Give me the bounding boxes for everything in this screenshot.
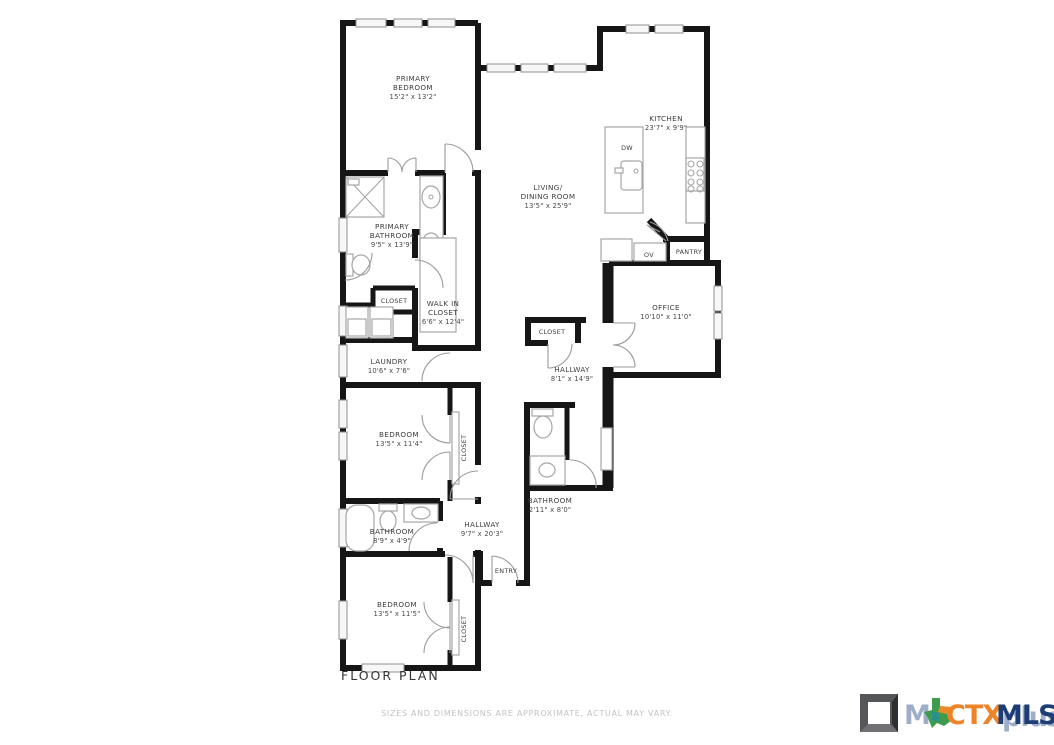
label-walk-in-closet-dims: 6'6" x 12'4" [422,318,464,326]
label-walk-in-closet-2: CLOSET [428,308,458,317]
label-bedroom-mid-dims: 13'5" x 11'4" [376,440,423,448]
label-laundry-dims: 10'6" x 7'6" [368,367,410,375]
label-bedroom-mid: BEDROOM [379,430,419,439]
label-primary-bedroom-dims: 15'2" x 13'2" [390,93,437,101]
label-hallway-lower: HALLWAY [464,520,500,529]
label-living-dims: 13'5" x 25'9" [525,202,572,210]
label-bedroom-bottom: BEDROOM [377,600,417,609]
logo-ghost-text: M [904,700,930,731]
brand-logo: M CTX plus MLS [858,690,1054,740]
label-living-2: DINING ROOM [521,192,576,201]
label-bathroom-small-dims: 2'11" x 8'0" [529,506,571,514]
label-bathroom-small: BATHROOM [528,496,572,505]
label-office-dims: 10'10" x 11'0" [640,313,691,321]
label-pantry: PANTRY [676,248,702,256]
label-closet-bath: CLOSET [381,297,408,305]
label-bedroom-bottom-dims: 13'5" x 11'5" [374,610,421,618]
logo-ctx-text: CTX [946,700,1003,731]
plan-title: FLOOR PLAN [341,668,440,683]
floor-plan-drawing: PRIMARY BEDROOM 15'2" x 13'2" KITCHEN 23… [0,0,1054,745]
room-labels: PRIMARY BEDROOM 15'2" x 13'2" KITCHEN 23… [368,74,702,642]
label-bathroom-mid-dims: 8'9" x 4'9" [373,537,411,545]
label-closet-mid: CLOSET [460,435,468,462]
label-primary-bathroom-dims: 9'5" x 13'9" [371,241,413,249]
label-hallway-lower-dims: 9'7" x 20'3" [461,530,503,538]
label-bathroom-mid: BATHROOM [370,527,414,536]
label-closet-bottom: CLOSET [460,616,468,643]
label-hallway-upper-dims: 8'1" x 14'9" [551,375,593,383]
label-kitchen-dims: 23'7" x 9'9" [645,124,687,132]
label-entry: ENTRY [495,567,517,575]
label-primary-bathroom: PRIMARY [375,222,409,231]
label-dishwasher: DW [621,144,633,152]
label-oven: OV [644,251,654,259]
doors [345,144,635,653]
logo-mls-text: MLS [996,700,1054,731]
label-office: OFFICE [652,303,680,312]
label-walk-in-closet: WALK IN [427,299,460,308]
label-living: LIVING/ [534,183,563,192]
label-hallway-upper: HALLWAY [554,365,590,374]
floor-plan-page: PRIMARY BEDROOM 15'2" x 13'2" KITCHEN 23… [0,0,1054,745]
label-laundry: LAUNDRY [371,357,408,366]
label-primary-bedroom-2: BEDROOM [393,83,433,92]
cube-icon [860,694,898,732]
label-kitchen: KITCHEN [649,114,683,123]
label-closet-hall: CLOSET [539,328,566,336]
label-primary-bedroom: PRIMARY [396,74,430,83]
label-primary-bathroom-2: BATHROOM [370,231,414,240]
